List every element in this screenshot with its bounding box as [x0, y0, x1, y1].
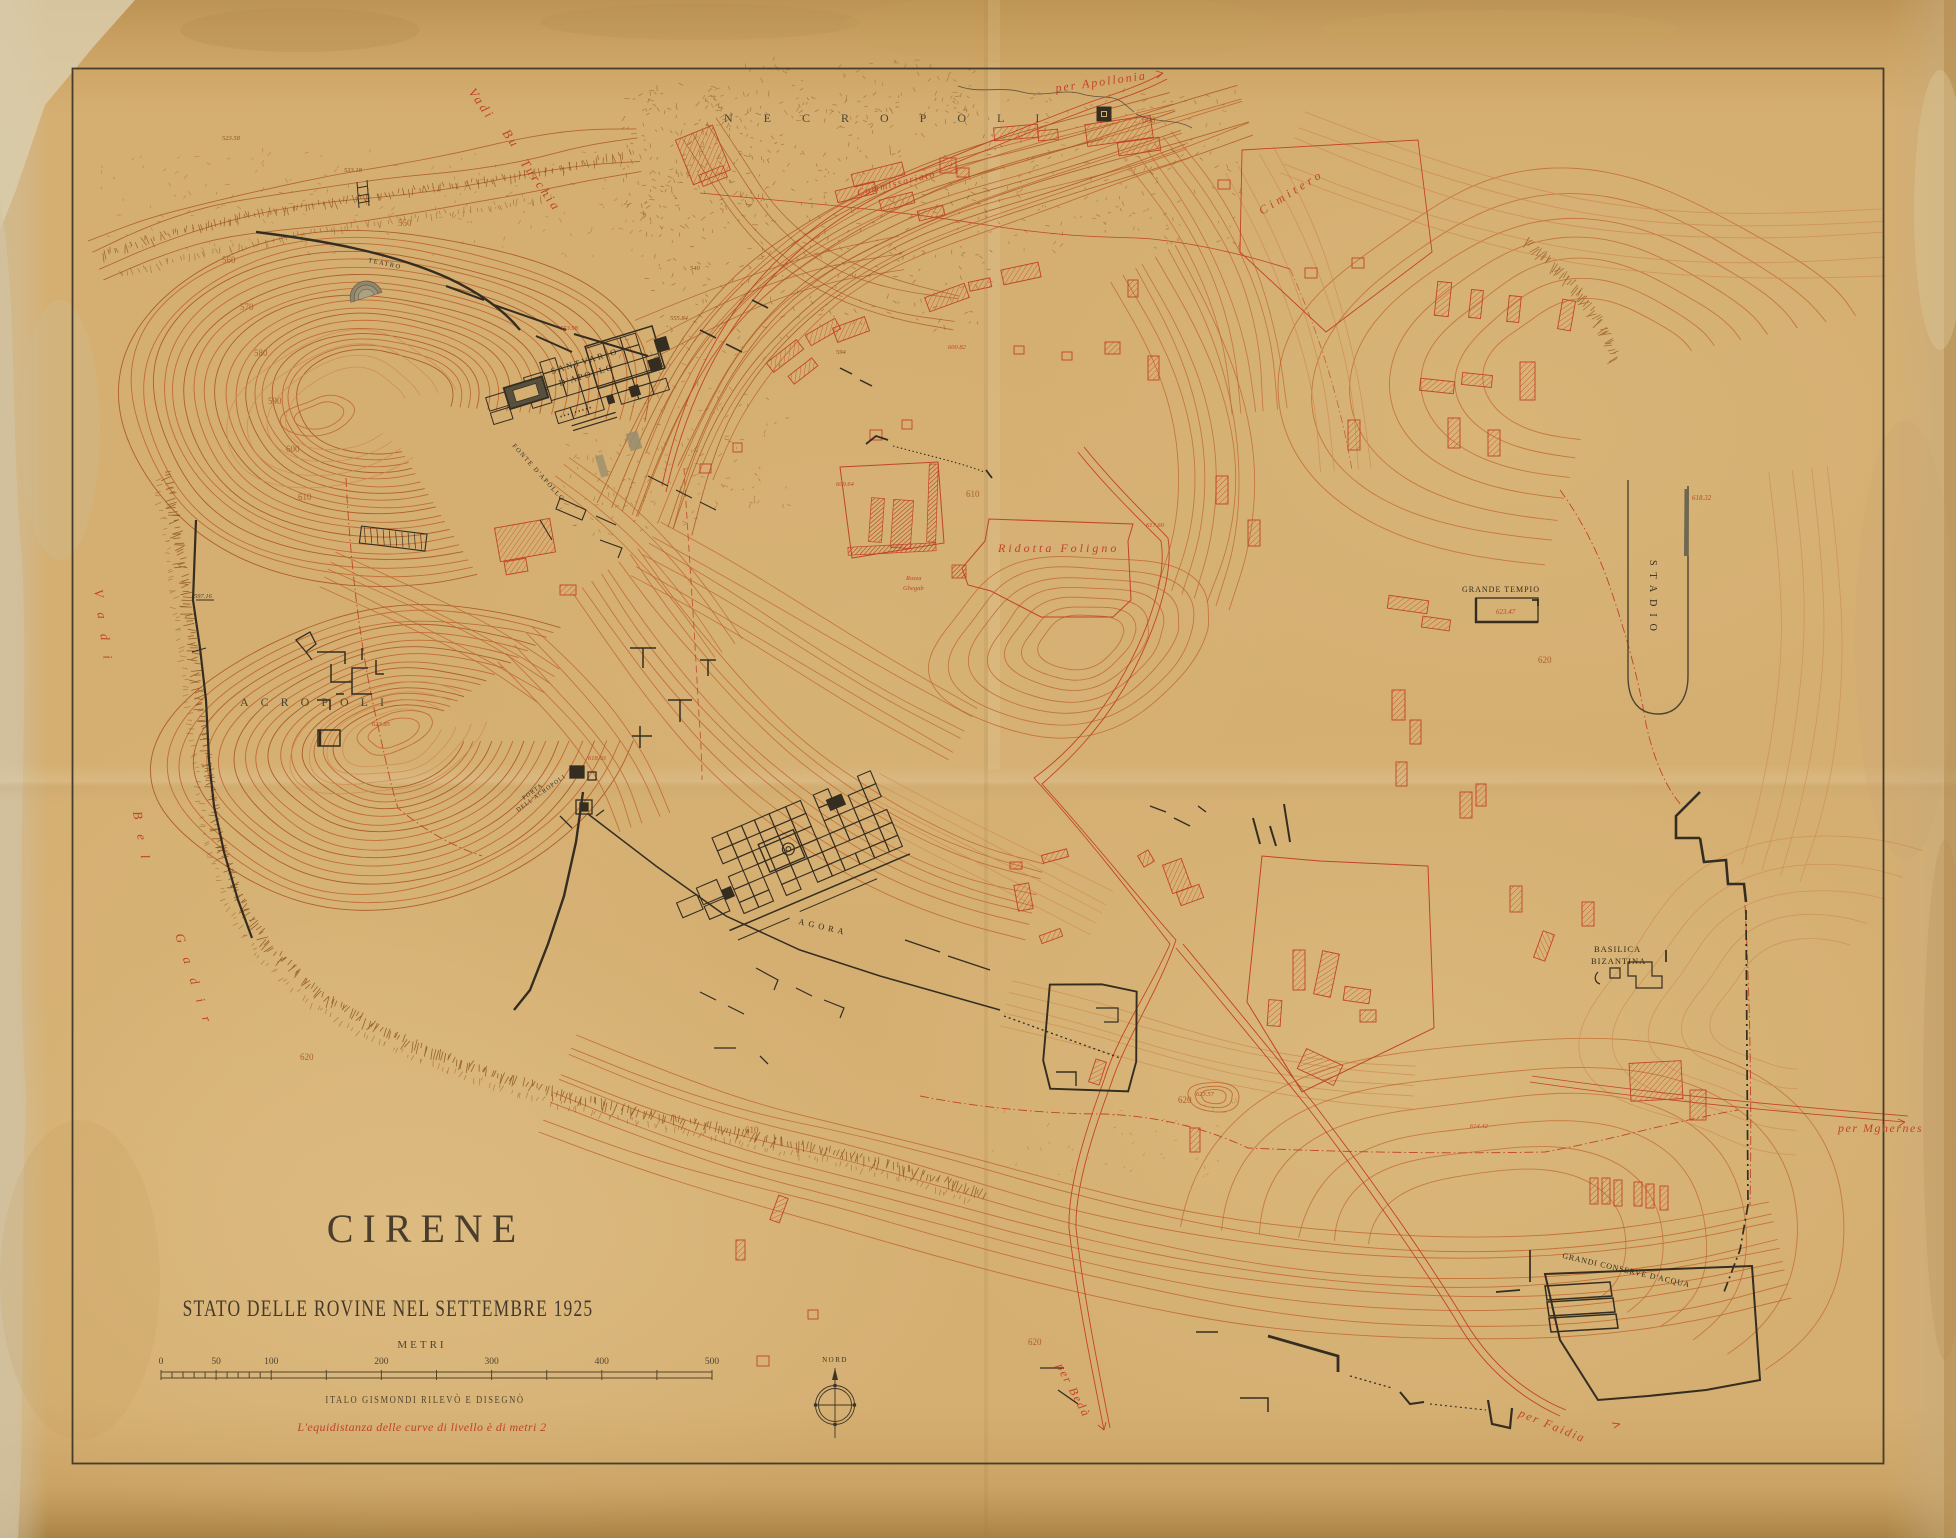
svg-text:533.18: 533.18 [344, 167, 363, 174]
svg-text:600: 600 [286, 444, 300, 454]
svg-text:550: 550 [398, 218, 412, 228]
svg-text:CIRENE: CIRENE [327, 1206, 525, 1251]
svg-text:NECROPOLI: NECROPOLI [724, 111, 1070, 125]
svg-text:0: 0 [159, 1357, 164, 1367]
svg-text:623.57: 623.57 [1196, 1091, 1215, 1098]
svg-text:597.16: 597.16 [194, 593, 213, 600]
svg-text:620: 620 [1178, 1095, 1192, 1105]
svg-text:50: 50 [211, 1357, 221, 1367]
svg-text:BASILICA: BASILICA [1594, 944, 1641, 954]
svg-text:553.98: 553.98 [560, 325, 579, 332]
svg-text:618.32: 618.32 [1692, 494, 1712, 502]
svg-text:NORD: NORD [822, 1356, 848, 1364]
svg-text:300: 300 [484, 1357, 499, 1367]
svg-text:560: 560 [222, 255, 236, 265]
svg-text:540: 540 [690, 265, 701, 272]
svg-text:618.03: 618.03 [588, 755, 607, 762]
svg-text:Rozza: Rozza [905, 575, 922, 582]
svg-text:555.84: 555.84 [670, 315, 689, 322]
svg-text:100: 100 [264, 1357, 279, 1367]
svg-text:400: 400 [595, 1357, 610, 1367]
svg-text:523.58: 523.58 [222, 135, 241, 142]
svg-text:594: 594 [836, 349, 847, 356]
svg-text:620: 620 [1538, 655, 1552, 665]
svg-text:500: 500 [705, 1357, 720, 1367]
svg-text:L'equidistanza delle curve di: L'equidistanza delle curve di livello è … [296, 1420, 546, 1434]
svg-text:610: 610 [966, 489, 980, 499]
svg-text:METRI: METRI [397, 1339, 446, 1351]
svg-text:STATO DELLE ROVINE NEL SETTEMB: STATO DELLE ROVINE NEL SETTEMBRE 1925 [183, 1297, 594, 1322]
svg-text:Ghegab: Ghegab [903, 585, 924, 592]
svg-text:620: 620 [1028, 1337, 1042, 1347]
svg-text:614.42: 614.42 [1470, 1123, 1489, 1130]
svg-text:ITALO GISMONDI RILEVÒ E DI: ITALO GISMONDI RILEVÒ E DISEGNÒ [325, 1393, 524, 1406]
svg-text:590: 590 [268, 396, 282, 406]
svg-text:570: 570 [240, 302, 254, 312]
svg-text:623.47: 623.47 [1496, 608, 1516, 616]
svg-text:GRANDE TEMPIO: GRANDE TEMPIO [1462, 585, 1540, 594]
svg-text:200: 200 [374, 1357, 389, 1367]
svg-text:610: 610 [298, 492, 312, 502]
svg-text:623.85: 623.85 [372, 721, 391, 728]
svg-text:BIZANTINA: BIZANTINA [1591, 956, 1646, 966]
svg-text:600.82: 600.82 [948, 344, 967, 351]
svg-text:Ridotta Foligno: Ridotta Foligno [997, 541, 1119, 555]
svg-text:620: 620 [300, 1052, 314, 1062]
svg-text:per Mghernes: per Mghernes [1837, 1121, 1923, 1135]
svg-text:617.60: 617.60 [1146, 522, 1165, 529]
svg-text:ACROPOLI: ACROPOLI [240, 695, 396, 709]
svg-text:580: 580 [254, 348, 268, 358]
svg-text:STADIO: STADIO [1647, 560, 1658, 638]
svg-text:609.64: 609.64 [836, 481, 855, 488]
